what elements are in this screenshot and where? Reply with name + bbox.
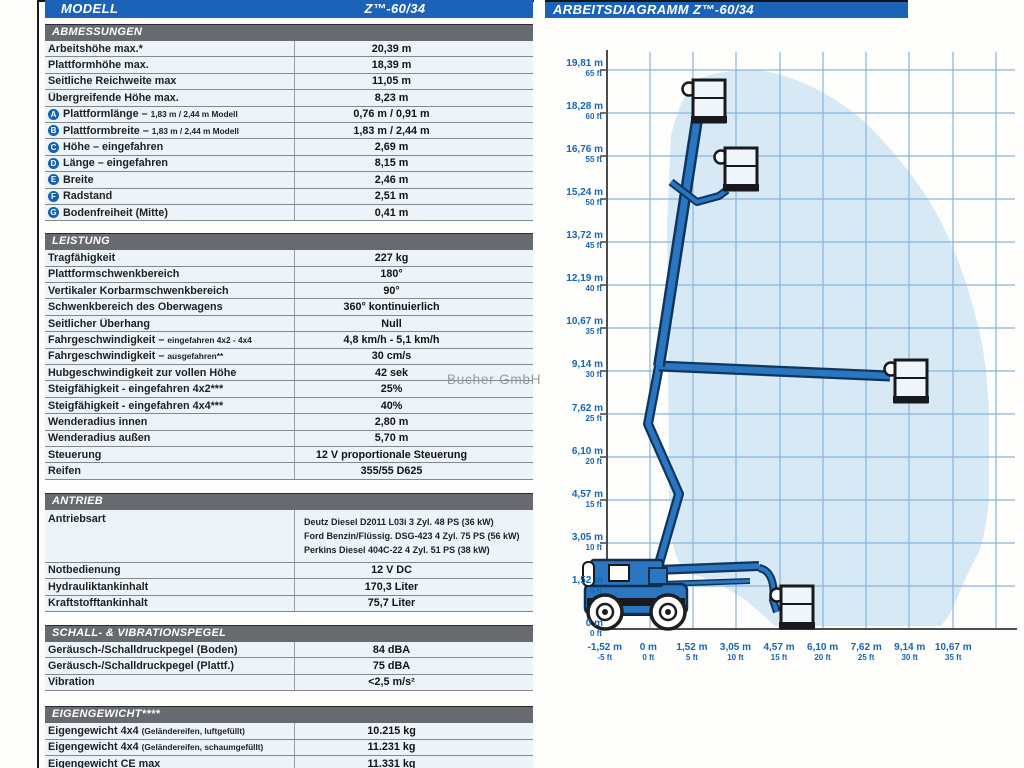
- row-value-cell: 355/55 D625: [294, 463, 533, 478]
- table-row: Fahrgeschwindigkeit – ausgefahren** 30 c…: [45, 349, 533, 365]
- table-row-antriebsart: Antriebsart Deutz Diesel D2011 L03i 3 Zy…: [45, 510, 533, 563]
- row-label-cell: Seitliche Reichweite max: [45, 75, 294, 87]
- row-value-cell: 40%: [294, 398, 533, 413]
- row-label: Hydrauliktankinhalt: [48, 581, 148, 593]
- table-row: Wenderadius außen 5,70 m: [45, 431, 533, 447]
- row-value-cell: 2,80 m: [294, 414, 533, 429]
- row-label-cell: Tragfähigkeit: [45, 252, 294, 264]
- table-row: G Bodenfreiheit (Mitte) 0,41 m: [45, 205, 533, 221]
- y-tick-meters: 13,72 m: [545, 230, 603, 241]
- row-value-cell: 227 kg: [294, 250, 533, 265]
- row-value: 40%: [381, 400, 403, 412]
- y-tick-meters: 10,67 m: [545, 316, 603, 327]
- row-value: 10.215 kg: [367, 725, 416, 737]
- row-value: 2,51 m: [375, 190, 409, 202]
- dimension-badge: D: [48, 158, 59, 169]
- row-value-cell: 2,69 m: [294, 139, 533, 154]
- row-label-cell: Schwenkbereich des Oberwagens: [45, 301, 294, 313]
- row-label: Tragfähigkeit: [48, 252, 115, 264]
- table-row: Seitliche Reichweite max 11,05 m: [45, 74, 533, 90]
- dimension-badge: A: [48, 109, 59, 120]
- x-tick: 9,14 m 30 ft: [888, 642, 932, 662]
- y-tick: 1,52 m 5 ft: [545, 575, 603, 599]
- row-label: Eigengewicht CE max: [48, 758, 160, 768]
- spec-table-leistung: Tragfähigkeit 227 kg Plattformschwenkber…: [45, 250, 533, 479]
- table-row: Kraftstofftankinhalt 75,7 Liter: [45, 596, 533, 612]
- y-tick: 12,19 m 40 ft: [545, 273, 603, 297]
- row-value: 11.231 kg: [367, 741, 415, 753]
- y-tick: 13,72 m 45 ft: [545, 230, 603, 254]
- table-row: Übergreifende Höhe max. 8,23 m: [45, 90, 533, 106]
- row-value-cell: 84 dBA: [294, 642, 533, 657]
- x-tick-meters: 9,14 m: [888, 642, 932, 653]
- dimension-badge: B: [48, 125, 59, 136]
- row-label-cell: Notbedienung: [45, 564, 294, 576]
- row-label-cell: B Plattformbreite – 1,83 m / 2,44 m Mode…: [45, 125, 294, 137]
- y-tick-feet: 20 ft: [545, 457, 603, 466]
- x-tick: 4,57 m 15 ft: [757, 642, 801, 662]
- y-tick-feet: 30 ft: [545, 370, 603, 379]
- row-value: 12 V proportionale Steuerung: [316, 449, 467, 461]
- row-label: Radstand: [63, 190, 112, 202]
- section-abmessungen: ABMESSUNGEN Arbeitshöhe max.* 20,39 m: [45, 24, 533, 221]
- section-header: ABMESSUNGEN: [45, 24, 533, 41]
- row-label-cell: Eigengewicht CE max: [45, 758, 294, 768]
- row-label: Vibration: [48, 676, 95, 688]
- row-label-cell: Plattformschwenkbereich: [45, 268, 294, 280]
- row-value: 170,3 Liter: [365, 581, 418, 593]
- row-label-cell: Steigfähigkeit - eingefahren 4x4***: [45, 400, 294, 412]
- row-label: Fahrgeschwindigkeit –: [48, 334, 164, 346]
- section-header: EIGENGEWICHT****: [45, 706, 533, 723]
- y-tick: 9,14 m 30 ft: [545, 359, 603, 383]
- y-tick: 3,05 m 10 ft: [545, 532, 603, 556]
- row-value-cell: 2,51 m: [294, 189, 533, 204]
- row-label-small: 1,83 m / 2,44 m Modell: [151, 109, 238, 119]
- x-tick-meters: 10,67 m: [932, 642, 976, 653]
- engine-option: Deutz Diesel D2011 L03i 3 Zyl. 48 PS (36…: [304, 515, 494, 529]
- spec-table-antrieb: Notbedienung 12 V DC Hydrauliktankinhalt…: [45, 563, 533, 612]
- x-tick-feet: 0 ft: [627, 653, 671, 662]
- row-label-cell: Steigfähigkeit - eingefahren 4x2***: [45, 383, 294, 395]
- y-tick: 18,28 m 60 ft: [545, 101, 603, 125]
- row-label-cell: Seitlicher Überhang: [45, 318, 294, 330]
- engine-option: Ford Benzin/Flüssig. DSG-423 4 Zyl. 75 P…: [304, 529, 520, 543]
- row-value-cell: 11.331 kg: [294, 756, 533, 768]
- row-value: Null: [381, 318, 401, 330]
- x-tick-meters: 6,10 m: [801, 642, 845, 653]
- y-tick-meters: 4,57 m: [545, 489, 603, 500]
- row-label: Reifen: [48, 465, 81, 477]
- y-tick: 0 m 0 ft: [545, 618, 603, 642]
- row-label: Plattformhöhe max.: [48, 59, 149, 71]
- row-label-cell: A Plattformlänge – 1,83 m / 2,44 m Model…: [45, 108, 294, 120]
- row-value: 30 cm/s: [372, 350, 412, 362]
- row-value-cell: 5,70 m: [294, 431, 533, 446]
- x-tick: 3,05 m 10 ft: [714, 642, 758, 662]
- row-value-cell: 0,76 m / 0,91 m: [294, 107, 533, 122]
- row-value-cell: 75 dBA: [294, 658, 533, 673]
- row-label: Antriebsart: [48, 513, 106, 525]
- table-row: Plattformschwenkbereich 180°: [45, 267, 533, 283]
- table-row: Schwenkbereich des Oberwagens 360° konti…: [45, 299, 533, 315]
- y-tick-feet: 25 ft: [545, 414, 603, 423]
- row-label: Seitliche Reichweite max: [48, 75, 176, 87]
- model-header-bar: MODELL Z™-60/34: [45, 0, 533, 18]
- row-value: 20,39 m: [372, 43, 412, 55]
- table-row: Steuerung 12 V proportionale Steuerung: [45, 447, 533, 463]
- spec-sheet-page: MODELL Z™-60/34 ABMESSUNGEN Arbeitshöhe …: [0, 0, 1024, 768]
- row-label-cell: Wenderadius innen: [45, 416, 294, 428]
- section-leistung: LEISTUNG Tragfähigkeit 227 kg: [45, 233, 533, 479]
- row-label: Arbeitshöhe max.*: [48, 43, 143, 55]
- row-label-cell: Reifen: [45, 465, 294, 477]
- row-value-cell: 11.231 kg: [294, 740, 533, 755]
- y-tick: 16,76 m 55 ft: [545, 144, 603, 168]
- row-value-cell: 0,41 m: [294, 205, 533, 220]
- working-envelope-chart: [545, 0, 1024, 660]
- y-tick-meters: 18,28 m: [545, 101, 603, 112]
- table-row: Reifen 355/55 D625: [45, 463, 533, 479]
- x-tick-feet: 5 ft: [670, 653, 714, 662]
- table-row: Eigengewicht 4x4 (Geländereifen, schaumg…: [45, 740, 533, 756]
- row-label-small: eingefahren 4x2 - 4x4: [167, 335, 251, 345]
- row-label-cell: Übergreifende Höhe max.: [45, 92, 294, 104]
- table-row: Notbedienung 12 V DC: [45, 563, 533, 579]
- y-tick-feet: 15 ft: [545, 500, 603, 509]
- y-tick-feet: 40 ft: [545, 284, 603, 293]
- x-tick-feet: 15 ft: [757, 653, 801, 662]
- row-value: 8,23 m: [375, 92, 409, 104]
- y-tick: 15,24 m 50 ft: [545, 187, 603, 211]
- row-label-cell: E Breite: [45, 174, 294, 186]
- row-label-cell: F Radstand: [45, 190, 294, 202]
- row-value: <2,5 m/s²: [368, 676, 415, 688]
- row-value-cell: 11,05 m: [294, 74, 533, 89]
- row-value: 355/55 D625: [361, 465, 423, 477]
- row-value-cell: 8,23 m: [294, 90, 533, 105]
- y-tick: 6,10 m 20 ft: [545, 446, 603, 470]
- section-eigengewicht: EIGENGEWICHT**** Eigengewicht 4x4 (Gelän…: [45, 706, 533, 768]
- row-value-cell: 180°: [294, 267, 533, 282]
- scan-left-border: [37, 0, 39, 768]
- y-tick-feet: 35 ft: [545, 327, 603, 336]
- row-label: Wenderadius innen: [48, 416, 147, 428]
- row-label: Geräusch-/Schalldruckpegel (Plattf.): [48, 660, 234, 672]
- row-label-small: 1,83 m / 2,44 m Modell: [152, 126, 239, 136]
- row-value-cell: 30 cm/s: [294, 349, 533, 364]
- row-value-cell: 2,46 m: [294, 172, 533, 187]
- y-tick-feet: 55 ft: [545, 155, 603, 164]
- row-value: 75,7 Liter: [368, 597, 415, 609]
- row-label: Länge – eingefahren: [63, 157, 168, 169]
- spec-table-schall: Geräusch-/Schalldruckpegel (Boden) 84 dB…: [45, 642, 533, 691]
- y-tick-feet: 5 ft: [545, 586, 603, 595]
- row-label-cell: Hubgeschwindigkeit zur vollen Höhe: [45, 367, 294, 379]
- y-tick-meters: 1,52 m: [545, 575, 603, 586]
- dimension-badge: C: [48, 142, 59, 153]
- row-label: Bodenfreiheit (Mitte): [63, 207, 168, 219]
- row-value: 2,69 m: [375, 141, 409, 153]
- row-label-cell: Steuerung: [45, 449, 294, 461]
- row-label-cell: Wenderadius außen: [45, 432, 294, 444]
- row-label: Wenderadius außen: [48, 432, 150, 444]
- table-row: Geräusch-/Schalldruckpegel (Plattf.) 75 …: [45, 658, 533, 674]
- row-label-cell: G Bodenfreiheit (Mitte): [45, 207, 294, 219]
- row-label-cell: Antriebsart: [45, 510, 294, 525]
- row-label: Notbedienung: [48, 564, 121, 576]
- section-header: SCHALL- & VIBRATIONSPEGEL: [45, 625, 533, 642]
- x-tick: 1,52 m 5 ft: [670, 642, 714, 662]
- table-row: F Radstand 2,51 m: [45, 189, 533, 205]
- model-label: MODELL: [61, 1, 118, 16]
- x-tick-feet: 35 ft: [932, 653, 976, 662]
- y-tick-feet: 60 ft: [545, 112, 603, 121]
- section-header: LEISTUNG: [45, 233, 533, 250]
- row-label: Fahrgeschwindigkeit –: [48, 350, 164, 362]
- row-label-cell: Fahrgeschwindigkeit – eingefahren 4x2 - …: [45, 334, 294, 346]
- row-value: 4,8 km/h - 5,1 km/h: [343, 334, 439, 346]
- row-value: 11,05 m: [372, 75, 411, 87]
- row-label-cell: D Länge – eingefahren: [45, 157, 294, 169]
- y-tick-meters: 19,81 m: [545, 58, 603, 69]
- row-label: Plattformlänge –: [63, 108, 148, 120]
- x-tick-meters: 3,05 m: [714, 642, 758, 653]
- x-tick-feet: 10 ft: [714, 653, 758, 662]
- x-tick-meters: -1,52 m: [583, 642, 627, 653]
- table-row: Eigengewicht 4x4 (Geländereifen, luftgef…: [45, 723, 533, 739]
- row-label-cell: Vertikaler Korbarmschwenkbereich: [45, 285, 294, 297]
- row-label-cell: Geräusch-/Schalldruckpegel (Boden): [45, 644, 294, 656]
- table-row: A Plattformlänge – 1,83 m / 2,44 m Model…: [45, 107, 533, 123]
- row-label: Schwenkbereich des Oberwagens: [48, 301, 223, 313]
- row-value: 0,41 m: [375, 207, 409, 219]
- row-label: Höhe – eingefahren: [63, 141, 163, 153]
- x-tick-feet: 30 ft: [888, 653, 932, 662]
- row-label-cell: Plattformhöhe max.: [45, 59, 294, 71]
- table-row: Geräusch-/Schalldruckpegel (Boden) 84 dB…: [45, 642, 533, 658]
- row-value: 1,83 m / 2,44 m: [353, 125, 429, 137]
- row-label-cell: Fahrgeschwindigkeit – ausgefahren**: [45, 350, 294, 362]
- row-label: Seitlicher Überhang: [48, 318, 150, 330]
- row-value: 90°: [383, 285, 399, 297]
- dimension-badge: G: [48, 207, 59, 218]
- row-value: 5,70 m: [375, 432, 409, 444]
- row-value-cell: 12 V DC: [294, 563, 533, 578]
- table-row: Vertikaler Korbarmschwenkbereich 90°: [45, 283, 533, 299]
- y-tick-meters: 0 m: [545, 618, 603, 629]
- table-row: Tragfähigkeit 227 kg: [45, 250, 533, 266]
- row-label-cell: Vibration: [45, 676, 294, 688]
- table-row: Arbeitshöhe max.* 20,39 m: [45, 41, 533, 57]
- row-label: Plattformbreite –: [63, 125, 149, 137]
- row-value: 18,39 m: [372, 59, 412, 71]
- y-tick-meters: 15,24 m: [545, 187, 603, 198]
- x-tick-meters: 7,62 m: [844, 642, 888, 653]
- y-tick: 10,67 m 35 ft: [545, 316, 603, 340]
- row-value-cell: <2,5 m/s²: [294, 675, 533, 690]
- y-tick-feet: 0 ft: [545, 629, 603, 638]
- row-value-cell: 8,15 m: [294, 156, 533, 171]
- row-label: Breite: [63, 174, 94, 186]
- x-tick-meters: 0 m: [627, 642, 671, 653]
- y-tick: 19,81 m 65 ft: [545, 58, 603, 82]
- y-tick-feet: 50 ft: [545, 198, 603, 207]
- row-value-cell: 90°: [294, 283, 533, 298]
- row-value-cell: Null: [294, 316, 533, 331]
- row-label-cell: Eigengewicht 4x4 (Geländereifen, schaumg…: [45, 741, 294, 753]
- y-tick: 7,62 m 25 ft: [545, 403, 603, 427]
- row-value: 2,80 m: [375, 416, 409, 428]
- x-tick: 0 m 0 ft: [627, 642, 671, 662]
- y-tick: 4,57 m 15 ft: [545, 489, 603, 513]
- x-tick-meters: 1,52 m: [670, 642, 714, 653]
- y-tick-meters: 16,76 m: [545, 144, 603, 155]
- table-row: B Plattformbreite – 1,83 m / 2,44 m Mode…: [45, 123, 533, 139]
- table-row: Eigengewicht CE max 11.331 kg: [45, 756, 533, 768]
- row-label-small: (Geländereifen, luftgefüllt): [142, 726, 245, 736]
- table-row: Steigfähigkeit - eingefahren 4x4*** 40%: [45, 398, 533, 414]
- model-value: Z™-60/34: [295, 1, 495, 16]
- row-label-small: ausgefahren**: [167, 351, 223, 361]
- row-value-cell: 20,39 m: [294, 41, 533, 56]
- row-label: Eigengewicht 4x4: [48, 725, 139, 737]
- x-tick: 7,62 m 25 ft: [844, 642, 888, 662]
- row-label-small: (Geländereifen, schaumgefüllt): [142, 742, 264, 752]
- row-value: 2,46 m: [375, 174, 409, 186]
- y-tick-feet: 65 ft: [545, 69, 603, 78]
- row-value-cell: 1,83 m / 2,44 m: [294, 123, 533, 138]
- row-value: 75 dBA: [373, 660, 410, 672]
- table-row: Hydrauliktankinhalt 170,3 Liter: [45, 579, 533, 595]
- row-value-cell: 360° kontinuierlich: [294, 299, 533, 314]
- y-axis-ticks: 19,81 m 65 ft 18,28 m 60 ft 16,76 m 55 f…: [545, 58, 603, 642]
- x-axis-ticks: -1,52 m -5 ft 0 m 0 ft 1,52 m 5 ft 3,05 …: [583, 642, 975, 662]
- row-value-cell: 10.215 kg: [294, 723, 533, 738]
- y-tick-feet: 10 ft: [545, 543, 603, 552]
- row-value-cell: 170,3 Liter: [294, 579, 533, 594]
- row-value-cell: 75,7 Liter: [294, 596, 533, 611]
- watermark: Bucher GmbH: [447, 372, 541, 387]
- row-value: 11.331 kg: [367, 758, 415, 768]
- table-row: Wenderadius innen 2,80 m: [45, 414, 533, 430]
- row-value: 84 dBA: [373, 644, 410, 656]
- row-label: Vertikaler Korbarmschwenkbereich: [48, 285, 229, 297]
- table-row: Fahrgeschwindigkeit – eingefahren 4x2 - …: [45, 332, 533, 348]
- y-tick-meters: 6,10 m: [545, 446, 603, 457]
- dimension-badge: E: [48, 174, 59, 185]
- x-tick: -1,52 m -5 ft: [583, 642, 627, 662]
- row-value: 12 V DC: [371, 564, 412, 576]
- row-label: Geräusch-/Schalldruckpegel (Boden): [48, 644, 238, 656]
- engine-option: Perkins Diesel 404C-22 4 Zyl. 51 PS (38 …: [304, 543, 490, 557]
- section-header: ANTRIEB: [45, 493, 533, 510]
- x-tick-feet: 25 ft: [844, 653, 888, 662]
- spec-table-abmessungen: Arbeitshöhe max.* 20,39 m Plattformhöhe …: [45, 41, 533, 221]
- row-label: Steigfähigkeit - eingefahren 4x2***: [48, 383, 223, 395]
- table-row: D Länge – eingefahren 8,15 m: [45, 156, 533, 172]
- x-tick: 6,10 m 20 ft: [801, 642, 845, 662]
- row-value: 0,76 m / 0,91 m: [353, 108, 429, 120]
- row-label: Eigengewicht 4x4: [48, 741, 139, 753]
- y-tick-meters: 7,62 m: [545, 403, 603, 414]
- row-label: Steigfähigkeit - eingefahren 4x4***: [48, 400, 223, 412]
- row-value-cell: 18,39 m: [294, 57, 533, 72]
- table-row: Seitlicher Überhang Null: [45, 316, 533, 332]
- y-tick-meters: 3,05 m: [545, 532, 603, 543]
- table-row: E Breite 2,46 m: [45, 172, 533, 188]
- row-value-cell: Deutz Diesel D2011 L03i 3 Zyl. 48 PS (36…: [294, 510, 533, 562]
- row-label: Übergreifende Höhe max.: [48, 92, 179, 104]
- table-row: Plattformhöhe max. 18,39 m: [45, 57, 533, 73]
- row-value-cell: 4,8 km/h - 5,1 km/h: [294, 332, 533, 347]
- section-antrieb: ANTRIEB Antriebsart Deutz Diesel D2011 L…: [45, 493, 533, 612]
- row-label-cell: Geräusch-/Schalldruckpegel (Plattf.): [45, 660, 294, 672]
- row-value: 180°: [380, 268, 402, 280]
- row-value: 360° kontinuierlich: [343, 301, 439, 313]
- spec-table-eigengewicht: Eigengewicht 4x4 (Geländereifen, luftgef…: [45, 723, 533, 768]
- row-value: 25%: [381, 383, 403, 395]
- y-tick-meters: 12,19 m: [545, 273, 603, 284]
- row-label: Plattformschwenkbereich: [48, 268, 179, 280]
- row-value-cell: 12 V proportionale Steuerung: [294, 447, 533, 462]
- row-label-cell: Eigengewicht 4x4 (Geländereifen, luftgef…: [45, 725, 294, 737]
- table-row: C Höhe – eingefahren 2,69 m: [45, 139, 533, 155]
- row-label-cell: Hydrauliktankinhalt: [45, 581, 294, 593]
- section-schall: SCHALL- & VIBRATIONSPEGEL Geräusch-/Scha…: [45, 625, 533, 691]
- row-label: Kraftstofftankinhalt: [48, 597, 148, 609]
- row-label-cell: C Höhe – eingefahren: [45, 141, 294, 153]
- row-value: 227 kg: [375, 252, 409, 264]
- row-label-cell: Arbeitshöhe max.*: [45, 43, 294, 55]
- x-tick-feet: -5 ft: [583, 653, 627, 662]
- y-tick-feet: 45 ft: [545, 241, 603, 250]
- row-label-cell: Kraftstofftankinhalt: [45, 597, 294, 609]
- row-value: 8,15 m: [375, 157, 409, 169]
- y-tick-meters: 9,14 m: [545, 359, 603, 370]
- x-tick-meters: 4,57 m: [757, 642, 801, 653]
- row-value: 42 sek: [375, 367, 408, 379]
- x-tick: 10,67 m 35 ft: [932, 642, 976, 662]
- row-label: Hubgeschwindigkeit zur vollen Höhe: [48, 367, 236, 379]
- x-tick-feet: 20 ft: [801, 653, 845, 662]
- dimension-badge: F: [48, 191, 59, 202]
- table-row: Vibration <2,5 m/s²: [45, 675, 533, 691]
- row-label: Steuerung: [48, 449, 101, 461]
